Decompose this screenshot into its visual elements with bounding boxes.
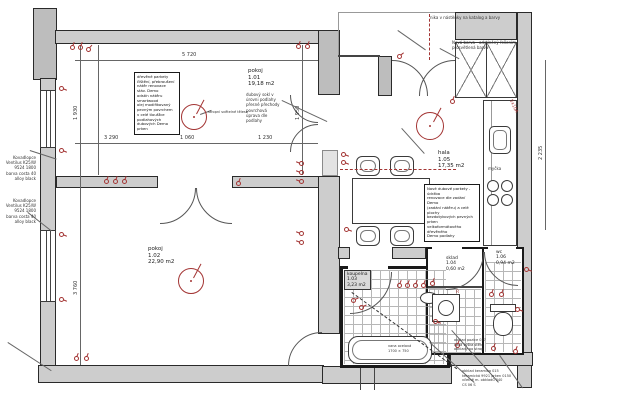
socket-icon (515, 307, 520, 312)
socket-icon (397, 283, 402, 288)
chair (356, 226, 380, 246)
wall (392, 247, 426, 259)
cooktop-burner (501, 180, 513, 192)
room-area: 3,23 m2 (347, 283, 368, 288)
installation-shaft (455, 42, 487, 98)
sink-basin (493, 130, 507, 150)
cooktop-burner (487, 194, 499, 206)
socket-icon (70, 45, 75, 50)
socket-icon (236, 181, 241, 186)
socket-icon (74, 356, 79, 361)
red-axis-dashed-line (429, 14, 430, 60)
socket-icon (341, 160, 346, 165)
dimension-label: 2 235 (539, 146, 544, 160)
room-number: 1.05 (438, 157, 464, 164)
room-area: 22,90 m2 (148, 259, 174, 266)
room-name: pokoj (148, 246, 174, 253)
socket-icon (84, 356, 89, 361)
room-number: 1.02 (148, 253, 174, 260)
kitchen-sink (489, 126, 511, 154)
socket-icon (59, 86, 64, 91)
socket-icon (491, 346, 496, 351)
socket-icon (299, 231, 304, 236)
toilet-tank (490, 304, 516, 312)
window2-spec-annotation: Kovadlopce Ventilus K25/W 9524 1800 barv… (0, 198, 36, 224)
light-annotation: stropní světelné těleso (208, 110, 248, 115)
window-glass-line (46, 91, 47, 147)
socket-icon (513, 349, 518, 354)
window (40, 230, 56, 302)
socket-icon (430, 281, 435, 286)
room-label-koupelna-103: koupelna 1.03 3,23 m2 (344, 270, 371, 290)
socket-icon (78, 45, 83, 50)
socket-icon (450, 99, 455, 104)
socket-icon (489, 292, 494, 297)
room-area: 0,94 m2 (496, 261, 515, 266)
room1-annotation: dubový sokl v úrovni podlahy přesné přec… (246, 92, 286, 123)
door-opening (432, 245, 462, 251)
room-name: pokoj (248, 68, 274, 75)
dimension-line (545, 60, 546, 230)
toilet-bowl (493, 312, 513, 336)
socket-icon (122, 179, 127, 184)
counter-edge-line (491, 101, 492, 245)
socket-icon (59, 297, 64, 302)
dimension-line (80, 45, 81, 365)
corridor-edge-line (338, 12, 339, 56)
door-swing-arc (196, 152, 268, 224)
top-niche-annotation: nika v nástěnky na katalog a barvy (430, 15, 500, 20)
kitchen-annotation: myčka (488, 166, 501, 171)
socket-icon (405, 283, 410, 288)
wall (232, 176, 323, 188)
wall (378, 56, 392, 96)
chair-cushion (360, 230, 376, 242)
socket-icon (421, 283, 426, 288)
socket-icon (299, 170, 304, 175)
wall (338, 247, 350, 259)
socket-icon (59, 232, 64, 237)
socket-icon (305, 44, 310, 49)
chair (356, 156, 380, 176)
chair (390, 156, 414, 176)
ceiling-light-icon (178, 268, 204, 294)
socket-icon (113, 179, 118, 184)
dimension-label: 1 060 (180, 136, 194, 141)
wall (38, 365, 324, 383)
leader-line (374, 368, 375, 390)
dimension-label: 3 290 (104, 136, 118, 141)
chair-cushion (394, 160, 410, 172)
room-area: 17,35 m2 (438, 163, 464, 170)
bathroom-annotation-2: obklad keramika 015 keramická 9921 prken… (462, 369, 511, 387)
dimension-line (98, 45, 99, 175)
socket-icon (396, 53, 403, 60)
dimension-line (75, 60, 318, 61)
room-label-sklad-104: sklad 1.04 0,60 m2 (446, 256, 465, 272)
wall (40, 300, 56, 368)
wall (318, 176, 340, 334)
chair-cushion (360, 160, 376, 172)
installation-shaft (486, 42, 517, 98)
room-label-pokoj-102: pokoj 1.02 22,90 m2 (148, 246, 174, 266)
room-area: 19,18 m2 (248, 81, 274, 88)
cooktop-burner (501, 194, 513, 206)
room-label-hala-105: hala 1.05 17,35 m2 (438, 150, 464, 170)
window (40, 90, 56, 148)
socket-icon (499, 292, 504, 297)
dimension-label: 5 720 (182, 53, 196, 58)
socket-icon (59, 148, 64, 153)
chair-cushion (394, 230, 410, 242)
wall-niche (322, 150, 338, 176)
top-color-annotation: Nová barva - odstíněný řešením prosvětle… (452, 40, 516, 50)
outer-edge-line (338, 12, 455, 13)
socket-icon (413, 283, 418, 288)
room-label-wc-106: wc 1.06 0,94 m2 (496, 250, 515, 266)
wall (33, 8, 57, 80)
socket-icon (524, 267, 529, 272)
window-glass-line (50, 231, 51, 301)
socket-icon (85, 46, 91, 52)
leader-line (360, 368, 361, 390)
floor-spec-notebox: dřevěné parkety čištění, přebroušení nát… (134, 72, 180, 135)
hala-spec-notebox: Nové dubové parkety - údržba renovace dl… (424, 184, 480, 242)
chair (390, 226, 414, 246)
dining-table (352, 178, 430, 224)
ceiling-light-icon (416, 112, 444, 140)
dimension-label: 1 930 (74, 106, 79, 120)
room-area: 0,60 m2 (446, 267, 465, 272)
dimension-label: 3 760 (74, 281, 79, 295)
cooktop-burner (487, 180, 499, 192)
bathtub-annotation: vana ocelová 1700 × 750 (388, 344, 411, 353)
window1-spec-annotation: Kovadlopce Ventilus K25/W 9524 1800 barv… (0, 155, 36, 181)
room-label-pokoj-101: pokoj 1.01 19,18 m2 (248, 68, 274, 88)
floor-plan-canvas: R 5x10A 5 720 3 290 1 060 1 230 1 930 3 … (0, 0, 640, 400)
socket-icon (296, 44, 301, 49)
bathroom-annotation-1: obklad pozice 017 čistá výška stěn obkla… (454, 338, 486, 352)
window-glass-line (50, 91, 51, 147)
door-swing-arc (124, 152, 196, 224)
wall (55, 30, 323, 44)
socket-icon (344, 227, 349, 232)
dimension-label: 1 950 (296, 106, 301, 120)
socket-icon (104, 179, 109, 184)
wall (318, 30, 340, 95)
ceiling-light-icon (181, 104, 207, 130)
socket-icon (299, 161, 304, 166)
socket-icon (299, 179, 304, 184)
leader-line (397, 30, 425, 50)
wall (322, 366, 452, 384)
washing-machine-drum (438, 300, 454, 316)
room-name: hala (438, 150, 464, 157)
window-glass-line (46, 231, 47, 301)
device-mark-label: R (456, 290, 459, 295)
kitchen-counter (483, 100, 517, 246)
dimension-line (75, 143, 318, 144)
hala-top-wall-line (338, 55, 380, 57)
socket-icon (341, 152, 346, 157)
socket-icon (299, 240, 304, 245)
dimension-label: 1 230 (258, 136, 272, 141)
room-number: 1.01 (248, 75, 274, 82)
socket-icon (433, 319, 438, 324)
